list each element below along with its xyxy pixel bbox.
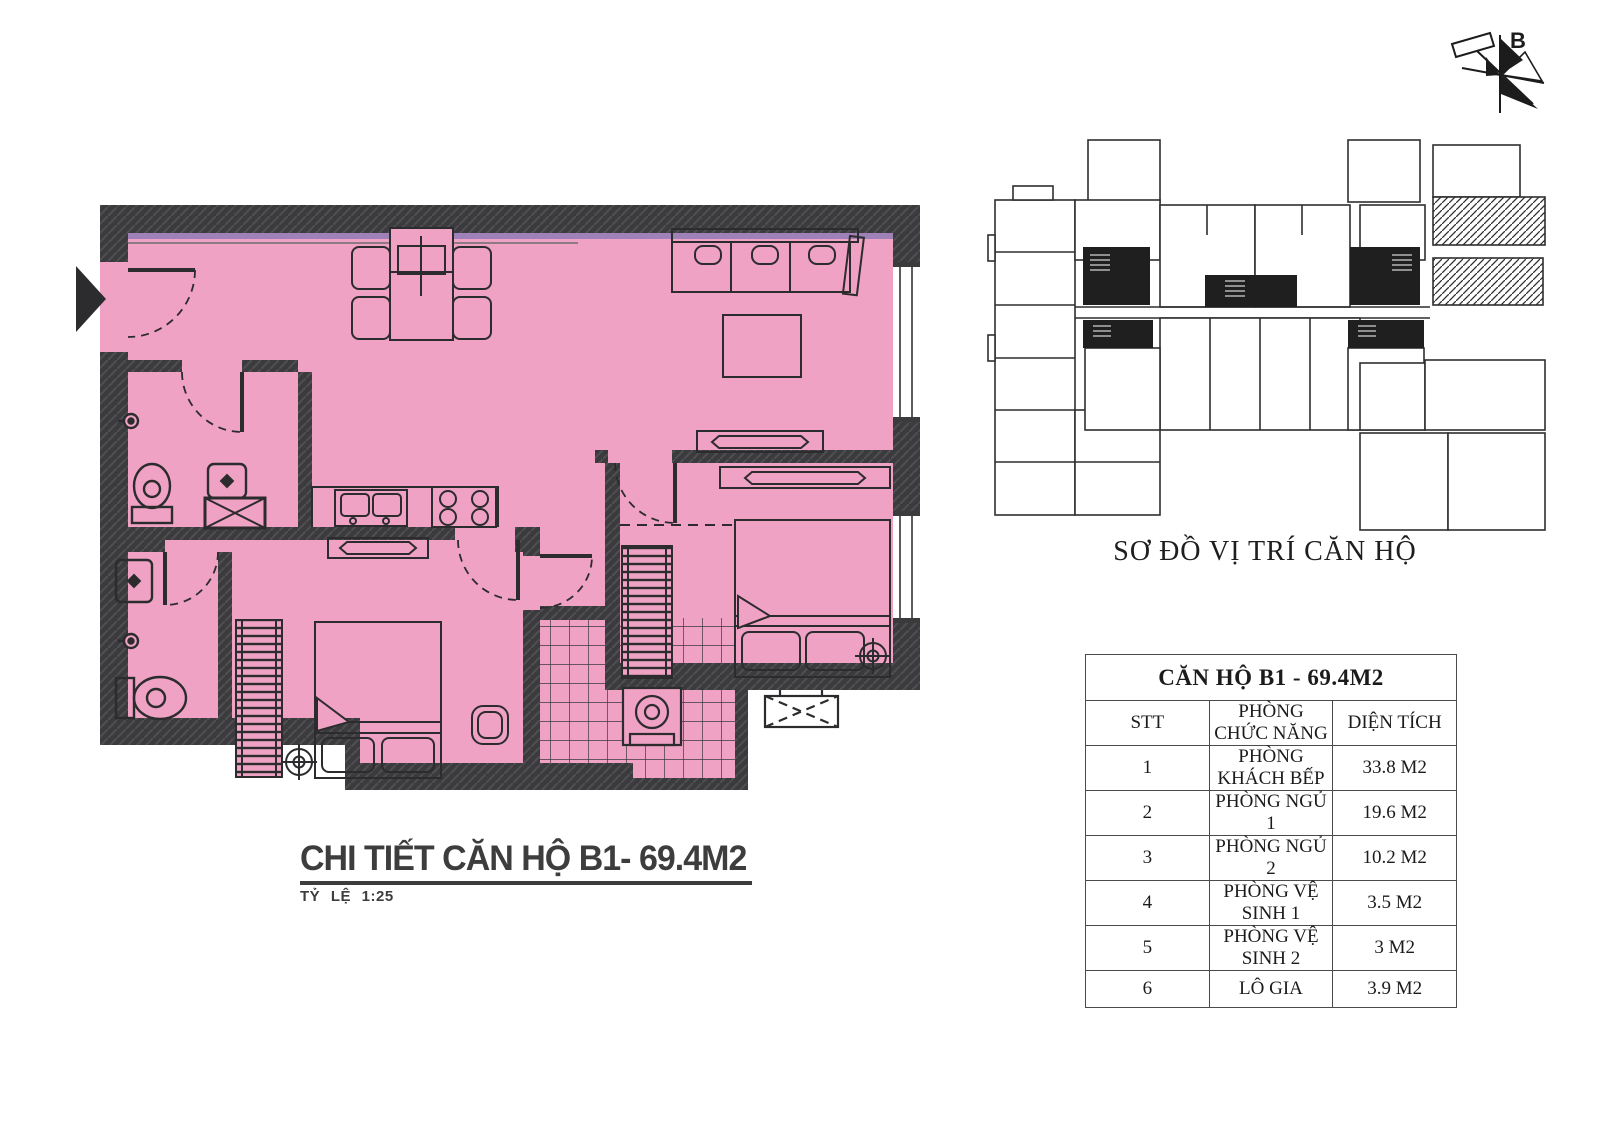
ac-unit — [765, 690, 838, 727]
detail-title-block: CHI TIẾT CĂN HỘ B1- 69.4M2 TỶ LỆ 1:25 — [300, 840, 766, 905]
highlighted-unit-b1 — [1433, 197, 1545, 245]
table-row: 5 PHÒNG VỆ SINH 2 3 M2 — [1086, 926, 1457, 971]
col-header-room: PHÒNG CHỨC NĂNG — [1209, 701, 1333, 746]
table-row: 6 LÔ GIA 3.9 M2 — [1086, 971, 1457, 1008]
col-header-area: DIỆN TÍCH — [1333, 701, 1457, 746]
col-header-stt: STT — [1086, 701, 1210, 746]
building-key-plan — [980, 130, 1550, 540]
scale-label: TỶ LỆ 1:25 — [300, 888, 766, 905]
washing-machine — [623, 688, 681, 745]
wardrobe-2 — [622, 546, 672, 678]
table-title: CĂN HỘ B1 - 69.4M2 — [1086, 655, 1457, 701]
table-row: 1 PHÒNG KHÁCH BẾP 33.8 M2 — [1086, 746, 1457, 791]
apartment-floorplan — [70, 190, 930, 800]
compass-north-icon: B — [1425, 15, 1560, 130]
keyplan-caption: SƠ ĐỒ VỊ TRÍ CĂN HỘ — [980, 536, 1550, 568]
table-row: 2 PHÒNG NGỦ 1 19.6 M2 — [1086, 791, 1457, 836]
table-row: 3 PHÒNG NGỦ 2 10.2 M2 — [1086, 836, 1457, 881]
area-table: CĂN HỘ B1 - 69.4M2 STT PHÒNG CHỨC NĂNG D… — [1085, 654, 1457, 1008]
table-title-row: CĂN HỘ B1 - 69.4M2 — [1086, 655, 1457, 701]
compass-label: B — [1510, 28, 1526, 53]
table-header-row: STT PHÒNG CHỨC NĂNG DIỆN TÍCH — [1086, 701, 1457, 746]
floorplan-sheet: { "colors":{"apartment_fill":"#efa2c3","… — [0, 0, 1600, 1131]
table-row: 4 PHÒNG VỆ SINH 1 3.5 M2 — [1086, 881, 1457, 926]
floor-lamp-1 — [281, 744, 317, 780]
highlighted-unit-b1-lower — [1433, 258, 1543, 305]
page-title: CHI TIẾT CĂN HỘ B1- 69.4M2 — [300, 840, 752, 885]
